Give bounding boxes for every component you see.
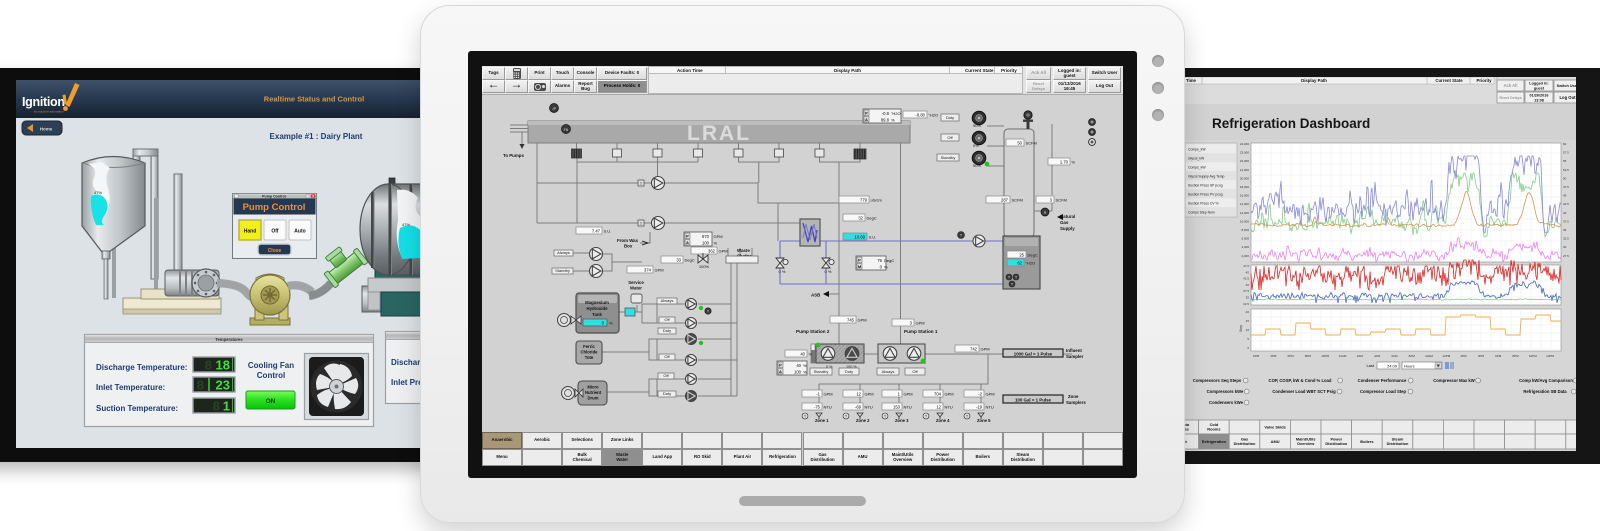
svg-text:ASB: ASB xyxy=(811,293,820,298)
svg-text:Zone 1: Zone 1 xyxy=(815,418,829,423)
svg-text:%: % xyxy=(809,351,813,356)
svg-text:DegC: DegC xyxy=(685,257,695,262)
svg-text:Gas: Gas xyxy=(1060,220,1069,225)
svg-text:"H2O: "H2O xyxy=(929,112,939,117)
svg-text:NTU: NTU xyxy=(945,404,953,409)
svg-text:704: 704 xyxy=(934,391,942,396)
svg-text:A: A xyxy=(686,240,689,245)
svg-text:Water: Water xyxy=(630,286,642,291)
svg-text:1.70: 1.70 xyxy=(1060,159,1069,164)
svg-text:1: 1 xyxy=(223,399,230,414)
svg-text:40: 40 xyxy=(1246,283,1250,287)
svg-text:T: T xyxy=(1008,276,1010,280)
svg-text:100%: 100% xyxy=(699,264,710,269)
svg-text:6AM: 6AM xyxy=(1391,354,1398,358)
svg-text:GPM: GPM xyxy=(945,391,954,396)
svg-text:Cooling Fan: Cooling Fan xyxy=(248,361,294,370)
svg-text:Off: Off xyxy=(664,317,670,322)
svg-text:10,000: 10,000 xyxy=(1240,219,1250,223)
svg-text:2,000: 2,000 xyxy=(1241,254,1249,258)
svg-text:Influent: Influent xyxy=(1066,348,1082,353)
svg-text:NTU: NTU xyxy=(865,404,873,409)
svg-text:Standby: Standby xyxy=(814,369,829,374)
svg-text:Overview: Overview xyxy=(1297,441,1315,446)
svg-text:47.5: 47.5 xyxy=(1243,264,1249,268)
svg-text:76: 76 xyxy=(877,258,882,263)
svg-text:Comp kW/Avg Comparison: Comp kW/Avg Comparison xyxy=(1519,378,1573,383)
svg-text:NTU: NTU xyxy=(986,404,994,409)
svg-text:153: 153 xyxy=(893,404,901,409)
svg-text:23,000: 23,000 xyxy=(1240,151,1250,155)
svg-text:4AM: 4AM xyxy=(1374,354,1381,358)
svg-text:%: % xyxy=(803,363,807,368)
svg-text:Tank: Tank xyxy=(592,312,602,317)
svg-text:Tote: Tote xyxy=(585,355,594,360)
svg-text:374: 374 xyxy=(644,267,652,272)
svg-text:Pump Station 2: Pump Station 2 xyxy=(796,329,830,334)
svg-text:Compressors kWe: Compressors kWe xyxy=(1207,389,1244,394)
svg-text:15: 15 xyxy=(1246,319,1250,323)
svg-text:100 Gal = 1 Pulse: 100 Gal = 1 Pulse xyxy=(1015,398,1052,403)
svg-text:Auto: Auto xyxy=(294,229,305,235)
svg-text:"H2O: "H2O xyxy=(1026,260,1036,265)
svg-text:-0.80: -0.80 xyxy=(915,112,925,117)
svg-text:2AM: 2AM xyxy=(1357,354,1364,358)
svg-text:45: 45 xyxy=(1563,194,1567,198)
svg-text:Logged in:: Logged in: xyxy=(1529,82,1548,86)
svg-text:T: T xyxy=(1011,283,1013,287)
svg-text:6PM: 6PM xyxy=(1288,354,1295,358)
svg-text:21,000: 21,000 xyxy=(1240,168,1250,172)
svg-text:16,000: 16,000 xyxy=(1240,194,1250,198)
svg-text:T: T xyxy=(804,415,806,419)
svg-text:30: 30 xyxy=(1563,245,1567,249)
svg-text:Duty: Duty xyxy=(845,369,853,374)
svg-text:Glycol_kW: Glycol_kW xyxy=(1188,157,1205,161)
svg-text:Glycol Supply Avg Temp: Glycol Supply Avg Temp xyxy=(1188,175,1225,179)
svg-text:Last: Last xyxy=(1366,363,1374,368)
svg-text:Comps_kW: Comps_kW xyxy=(1188,166,1206,170)
svg-text:Off: Off xyxy=(271,229,279,235)
svg-text:Example #1 : Dairy Plant: Example #1 : Dairy Plant xyxy=(270,132,363,141)
svg-text:Distribution: Distribution xyxy=(1387,441,1409,446)
svg-text:8: 8 xyxy=(213,399,220,414)
svg-text:by inductive automation: by inductive automation xyxy=(34,110,64,114)
svg-text:8AM: 8AM xyxy=(1409,354,1416,358)
svg-text:8PM: 8PM xyxy=(1305,354,1312,358)
svg-text:Waste: Waste xyxy=(737,248,750,253)
svg-text:Refrigeration SB Data: Refrigeration SB Data xyxy=(1523,389,1567,394)
svg-text:50: 50 xyxy=(1563,176,1567,180)
svg-text:22,000: 22,000 xyxy=(1240,159,1250,163)
svg-text:To Pumps: To Pumps xyxy=(503,153,524,158)
svg-text:0 %: 0 % xyxy=(779,269,786,274)
svg-text:GPM: GPM xyxy=(719,248,728,253)
svg-text:0%: 0% xyxy=(973,143,979,148)
svg-text:Compressors Seq Steps: Compressors Seq Steps xyxy=(1193,378,1242,383)
svg-text:10PM: 10PM xyxy=(1529,354,1537,358)
svg-text:Priority: Priority xyxy=(1476,78,1492,83)
svg-text:A: A xyxy=(779,369,782,374)
svg-text:%: % xyxy=(1072,159,1076,164)
svg-text:GPM: GPM xyxy=(714,234,723,239)
svg-text:10PM: 10PM xyxy=(1321,354,1329,358)
svg-text:Off: Off xyxy=(663,373,669,378)
svg-text:COP, COSP, kW & Cond % Load: COP, COSP, kW & Cond % Load xyxy=(1269,378,1332,383)
svg-text:Display Path: Display Path xyxy=(1301,78,1327,83)
svg-text:Nutrient: Nutrient xyxy=(585,390,602,395)
svg-text:42.5: 42.5 xyxy=(1563,202,1569,206)
svg-text:45: 45 xyxy=(1246,270,1250,274)
svg-text:AMU: AMU xyxy=(1271,439,1280,444)
svg-text:33: 33 xyxy=(676,257,681,262)
svg-text:DegC: DegC xyxy=(1028,252,1038,257)
svg-text:Log Out: Log Out xyxy=(1559,95,1576,100)
svg-text:P: P xyxy=(686,234,689,239)
svg-text:FN: FN xyxy=(564,128,569,132)
svg-text:Distribution: Distribution xyxy=(1325,441,1347,446)
svg-text:Zone 5: Zone 5 xyxy=(977,418,991,423)
svg-text:GPM: GPM xyxy=(986,391,995,396)
svg-text:Box: Box xyxy=(624,244,633,249)
svg-text:Inlet Temperature:: Inlet Temperature: xyxy=(96,383,165,392)
svg-text:55: 55 xyxy=(1563,159,1567,163)
svg-text:779: 779 xyxy=(860,197,868,202)
svg-text:100: 100 xyxy=(794,370,802,375)
svg-text:Hours: Hours xyxy=(1404,364,1415,369)
svg-text:35: 35 xyxy=(1246,296,1250,300)
svg-text:970: 970 xyxy=(702,234,710,239)
svg-text:A: A xyxy=(865,117,868,122)
svg-text:14,000: 14,000 xyxy=(1240,202,1250,206)
svg-text:SCFM: SCFM xyxy=(1012,197,1023,202)
svg-text:Off: Off xyxy=(947,135,953,140)
svg-text:Ferric: Ferric xyxy=(583,344,595,349)
svg-text:Zone 3: Zone 3 xyxy=(895,418,909,423)
svg-text:Time: Time xyxy=(1186,78,1197,83)
svg-text:24,000: 24,000 xyxy=(1240,142,1250,146)
svg-text:Chloride: Chloride xyxy=(581,350,599,355)
svg-text:10AM: 10AM xyxy=(1425,354,1433,358)
svg-text:GPM: GPM xyxy=(865,391,874,396)
svg-text:-75: -75 xyxy=(814,404,821,409)
svg-text:ON: ON xyxy=(266,398,276,405)
svg-text:Pump Control: Pump Control xyxy=(262,195,286,199)
svg-text:GPM: GPM xyxy=(981,346,990,351)
svg-text:S.U.: S.U. xyxy=(604,228,612,233)
svg-text:%: % xyxy=(884,265,888,270)
svg-text:GPM: GPM xyxy=(904,391,913,396)
svg-text:Zone 2: Zone 2 xyxy=(856,418,870,423)
svg-text:Suction Temperature:: Suction Temperature: xyxy=(96,404,178,413)
svg-text:13:08: 13:08 xyxy=(1534,99,1544,103)
svg-text:GPM: GPM xyxy=(858,317,867,322)
svg-text:89.8: 89.8 xyxy=(881,118,890,123)
svg-text:42.5: 42.5 xyxy=(1243,277,1249,281)
svg-text:Control: Control xyxy=(257,371,285,380)
svg-text:20,000: 20,000 xyxy=(1240,176,1250,180)
svg-text:Off: Off xyxy=(664,354,670,359)
svg-text:12PM: 12PM xyxy=(1442,354,1450,358)
svg-text:Hydroxide: Hydroxide xyxy=(586,306,608,311)
svg-text:8,000: 8,000 xyxy=(1241,228,1249,232)
svg-text:Drum: Drum xyxy=(588,396,599,401)
svg-text:Ignition: Ignition xyxy=(22,95,65,109)
svg-text:Realtime Status and Control: Realtime Status and Control xyxy=(264,95,364,104)
svg-text:T: T xyxy=(960,234,962,238)
svg-text:Samplers: Samplers xyxy=(1066,400,1086,405)
svg-text:JP: JP xyxy=(552,107,557,111)
svg-text:T: T xyxy=(925,415,927,419)
svg-text:S.U.: S.U. xyxy=(869,234,877,239)
svg-text:18,000: 18,000 xyxy=(1240,185,1250,189)
svg-text:Duty: Duty xyxy=(663,391,671,396)
svg-text:T: T xyxy=(966,415,968,419)
svg-text:287: 287 xyxy=(1001,197,1009,202)
svg-text:10: 10 xyxy=(1246,328,1250,332)
svg-text:T: T xyxy=(1015,276,1017,280)
svg-text:50%: 50% xyxy=(973,163,981,168)
svg-text:Comps Step Num: Comps Step Num xyxy=(1188,211,1215,215)
svg-text:362: 362 xyxy=(708,248,716,253)
svg-text:GPM: GPM xyxy=(824,391,833,396)
svg-text:47.5: 47.5 xyxy=(1563,185,1569,189)
svg-text:32: 32 xyxy=(858,215,863,220)
svg-text:Step: Step xyxy=(1239,325,1243,332)
svg-text:T: T xyxy=(707,310,709,314)
svg-text:37.5: 37.5 xyxy=(1563,219,1569,223)
svg-text:32.5: 32.5 xyxy=(1243,302,1249,306)
svg-text:27.5: 27.5 xyxy=(1563,254,1569,258)
svg-text:Home: Home xyxy=(40,127,53,132)
svg-text:Distribution: Distribution xyxy=(1234,441,1256,446)
svg-text:4PM: 4PM xyxy=(1270,354,1277,358)
svg-text:Refrigeration: Refrigeration xyxy=(1202,439,1227,444)
svg-text:Rooms: Rooms xyxy=(1207,427,1220,432)
svg-text:uS/cm: uS/cm xyxy=(871,197,883,202)
svg-text:Current State: Current State xyxy=(1435,78,1463,83)
svg-text:Natural: Natural xyxy=(1060,214,1075,219)
svg-text:24:00: 24:00 xyxy=(1387,364,1398,369)
svg-text:Compressor Load Step: Compressor Load Step xyxy=(1360,389,1407,394)
svg-text:6,000: 6,000 xyxy=(1241,237,1249,241)
svg-text:Discharge Temperature:: Discharge Temperature: xyxy=(96,363,187,372)
svg-text:Suction Press CV %: Suction Press CV % xyxy=(1188,202,1219,206)
svg-text:Compressor Max kW: Compressor Max kW xyxy=(1433,378,1474,383)
svg-text:%: % xyxy=(803,370,807,375)
svg-text:52.5: 52.5 xyxy=(1563,168,1569,172)
svg-text:-0.8: -0.8 xyxy=(882,111,890,116)
svg-text:Suction Press PV pcog: Suction Press PV pcog xyxy=(1188,193,1223,197)
svg-text:01/26/2016: 01/26/2016 xyxy=(1529,94,1548,98)
svg-text:8: 8 xyxy=(197,378,204,393)
svg-text:Reset Delays: Reset Delays xyxy=(1499,96,1521,100)
svg-text:-19: -19 xyxy=(976,404,983,409)
svg-text:%: % xyxy=(714,241,718,246)
svg-text:Zone: Zone xyxy=(1068,394,1079,399)
svg-text:Valve Skids: Valve Skids xyxy=(1264,424,1285,429)
svg-text:GPM: GPM xyxy=(655,267,664,272)
svg-text:4,000: 4,000 xyxy=(1241,245,1249,249)
svg-text:0 %: 0 % xyxy=(825,269,832,274)
svg-text:LRAL: LRAL xyxy=(687,122,751,145)
svg-text:40: 40 xyxy=(800,351,805,356)
svg-text:Comps_kW: Comps_kW xyxy=(1188,148,1206,152)
svg-text:Micro: Micro xyxy=(587,385,599,390)
svg-text:37.5: 37.5 xyxy=(1243,289,1249,293)
svg-text:Always: Always xyxy=(661,298,674,303)
svg-text:Always: Always xyxy=(882,369,895,374)
svg-text:Sampler: Sampler xyxy=(1066,354,1084,359)
svg-text:Magnesium: Magnesium xyxy=(585,300,609,305)
svg-text:12PM: 12PM xyxy=(1546,354,1554,358)
svg-text:T: T xyxy=(884,415,886,419)
svg-text:NTU: NTU xyxy=(904,404,912,409)
svg-text:T: T xyxy=(845,415,847,419)
svg-text:P: P xyxy=(865,111,868,116)
svg-text:Boilers: Boilers xyxy=(1360,439,1373,444)
svg-text:100: 100 xyxy=(702,241,710,246)
svg-text:Pump Control: Pump Control xyxy=(243,202,306,213)
svg-text:From Wax: From Wax xyxy=(617,238,639,243)
svg-text:1000 Gal = 1 Pulse: 1000 Gal = 1 Pulse xyxy=(1014,352,1053,357)
svg-text:40: 40 xyxy=(1563,211,1567,215)
svg-text:12: 12 xyxy=(856,391,861,396)
svg-text:Supply: Supply xyxy=(1060,226,1075,231)
svg-text:Duty: Duty xyxy=(663,328,671,333)
svg-text:745: 745 xyxy=(847,317,855,322)
svg-text:Standby: Standby xyxy=(555,268,570,273)
svg-text:Duty: Duty xyxy=(946,115,954,120)
svg-text:7.47: 7.47 xyxy=(592,228,601,233)
svg-text:4PM: 4PM xyxy=(1478,354,1485,358)
svg-text:Pump Station 1: Pump Station 1 xyxy=(904,329,938,334)
svg-text:12AM: 12AM xyxy=(1339,354,1347,358)
svg-text:Switch User: Switch User xyxy=(1557,84,1576,88)
svg-text:Close: Close xyxy=(268,248,282,254)
svg-text:6PM: 6PM xyxy=(1495,354,1502,358)
svg-text:47%: 47% xyxy=(402,222,410,227)
svg-text:Zone 4: Zone 4 xyxy=(936,418,950,423)
svg-text:60: 60 xyxy=(1563,142,1567,146)
svg-text:Off: Off xyxy=(912,369,918,374)
svg-text:DegC: DegC xyxy=(867,215,877,220)
svg-text:50: 50 xyxy=(1017,140,1022,145)
svg-text:20: 20 xyxy=(1246,310,1250,314)
svg-text:SCFM: SCFM xyxy=(1056,197,1067,202)
svg-text:SCFM: SCFM xyxy=(1026,140,1037,145)
svg-text:Suction Press SP pcog: Suction Press SP pcog xyxy=(1188,184,1223,188)
svg-text:Standby: Standby xyxy=(941,155,956,160)
svg-text:742: 742 xyxy=(970,346,978,351)
svg-text:12,000: 12,000 xyxy=(1240,211,1250,215)
svg-text:2PM: 2PM xyxy=(1461,354,1468,358)
svg-text:Condenser Performance: Condenser Performance xyxy=(1358,378,1407,383)
svg-text:-69: -69 xyxy=(855,404,862,409)
svg-text:40: 40 xyxy=(796,363,801,368)
svg-text:25: 25 xyxy=(1019,252,1024,257)
svg-text:57.5: 57.5 xyxy=(1563,151,1569,155)
svg-text:35: 35 xyxy=(1563,228,1567,232)
svg-text:Ack All: Ack All xyxy=(1503,83,1517,88)
svg-text:23: 23 xyxy=(216,378,230,393)
svg-text:P: P xyxy=(858,258,861,263)
svg-text:Temperatures: Temperatures xyxy=(215,337,243,342)
svg-text:Condenser Load WBT SCT Psig: Condenser Load WBT SCT Psig xyxy=(1272,389,1336,394)
svg-text:12: 12 xyxy=(936,404,941,409)
svg-text:NTU: NTU xyxy=(824,404,832,409)
svg-text:90%: 90% xyxy=(973,123,981,128)
svg-text:"H2O: "H2O xyxy=(891,111,901,116)
svg-text:P: P xyxy=(779,363,782,368)
svg-text:Refrigeration Dashboard: Refrigeration Dashboard xyxy=(1212,116,1370,131)
svg-text:18: 18 xyxy=(216,358,230,373)
svg-text:GPM: GPM xyxy=(916,320,925,325)
svg-text:Service: Service xyxy=(628,280,644,285)
svg-text:62: 62 xyxy=(1017,260,1022,265)
svg-text:Always: Always xyxy=(557,250,570,255)
svg-text:guest: guest xyxy=(1534,87,1545,91)
svg-text:32.5: 32.5 xyxy=(1563,237,1569,241)
svg-text:%: % xyxy=(891,118,895,123)
svg-text:8PM: 8PM xyxy=(1512,354,1519,358)
svg-text:%: % xyxy=(609,321,613,326)
svg-text:2PM: 2PM xyxy=(1253,354,1260,358)
svg-text:47%: 47% xyxy=(94,190,102,195)
svg-text:Condensers kWe: Condensers kWe xyxy=(1209,400,1244,405)
svg-text:10.69: 10.69 xyxy=(855,234,866,239)
svg-text:8: 8 xyxy=(205,358,212,373)
svg-text:DegC: DegC xyxy=(884,258,894,263)
svg-text:Hand: Hand xyxy=(244,229,257,235)
